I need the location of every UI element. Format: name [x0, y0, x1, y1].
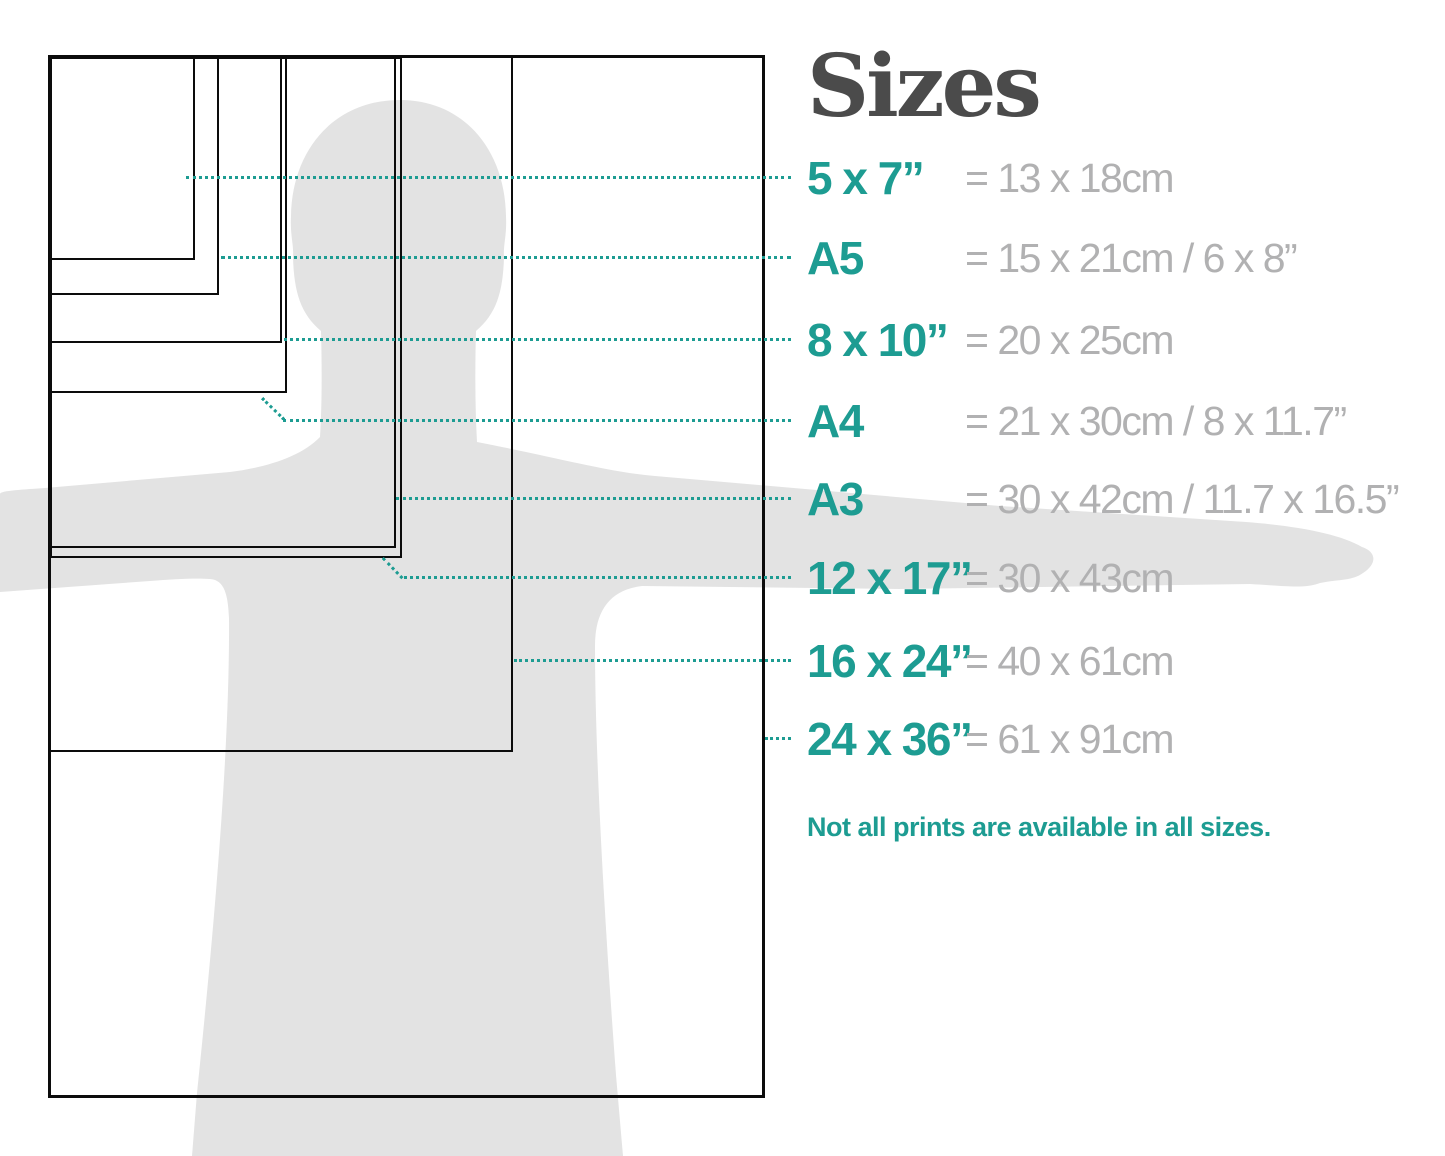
size-metric-24x36: = 61 x 91cm: [965, 716, 1173, 763]
size-metric-8x10: = 20 x 25cm: [965, 317, 1173, 364]
size-label-a3: A3: [807, 472, 965, 526]
size-row-24x36: 24 x 36”= 61 x 91cm: [807, 709, 1173, 769]
callout-line-a3: [396, 497, 791, 500]
size-row-8x10: 8 x 10”= 20 x 25cm: [807, 310, 1173, 370]
size-row-5x7: 5 x 7”= 13 x 18cm: [807, 148, 1173, 208]
size-row-a4: A4= 21 x 30cm / 8 x 11.7”: [807, 391, 1346, 451]
size-label-8x10: 8 x 10”: [807, 313, 965, 367]
callout-line-12x17: [404, 576, 791, 579]
callout-line-a5: [221, 256, 791, 259]
size-row-16x24: 16 x 24”= 40 x 61cm: [807, 631, 1173, 691]
size-label-12x17: 12 x 17”: [807, 551, 965, 605]
size-row-a3: A3= 30 x 42cm / 11.7 x 16.5”: [807, 469, 1398, 529]
callout-line-5x7: [186, 176, 791, 179]
size-metric-16x24: = 40 x 61cm: [965, 638, 1173, 685]
size-rectangle-5x7: [48, 55, 195, 260]
size-metric-5x7: = 13 x 18cm: [965, 155, 1173, 202]
callout-line-8x10: [284, 338, 791, 341]
callout-line-16x24: [514, 659, 791, 662]
size-guide-diagram: Sizes Not all prints are available in al…: [0, 0, 1445, 1156]
size-metric-a5: = 15 x 21cm / 6 x 8”: [965, 235, 1296, 282]
size-label-a5: A5: [807, 231, 965, 285]
size-metric-12x17: = 30 x 43cm: [965, 555, 1173, 602]
page-title: Sizes: [807, 44, 1039, 130]
availability-note: Not all prints are available in all size…: [807, 812, 1271, 843]
size-row-a5: A5= 15 x 21cm / 6 x 8”: [807, 228, 1296, 288]
size-label-16x24: 16 x 24”: [807, 634, 965, 688]
size-metric-a4: = 21 x 30cm / 8 x 11.7”: [965, 398, 1346, 445]
size-metric-a3: = 30 x 42cm / 11.7 x 16.5”: [965, 476, 1398, 523]
size-label-5x7: 5 x 7”: [807, 151, 965, 205]
callout-line-24x36: [765, 737, 791, 740]
size-row-12x17: 12 x 17”= 30 x 43cm: [807, 548, 1173, 608]
size-label-a4: A4: [807, 394, 965, 448]
callout-line-a4: [283, 419, 791, 422]
size-label-24x36: 24 x 36”: [807, 712, 965, 766]
